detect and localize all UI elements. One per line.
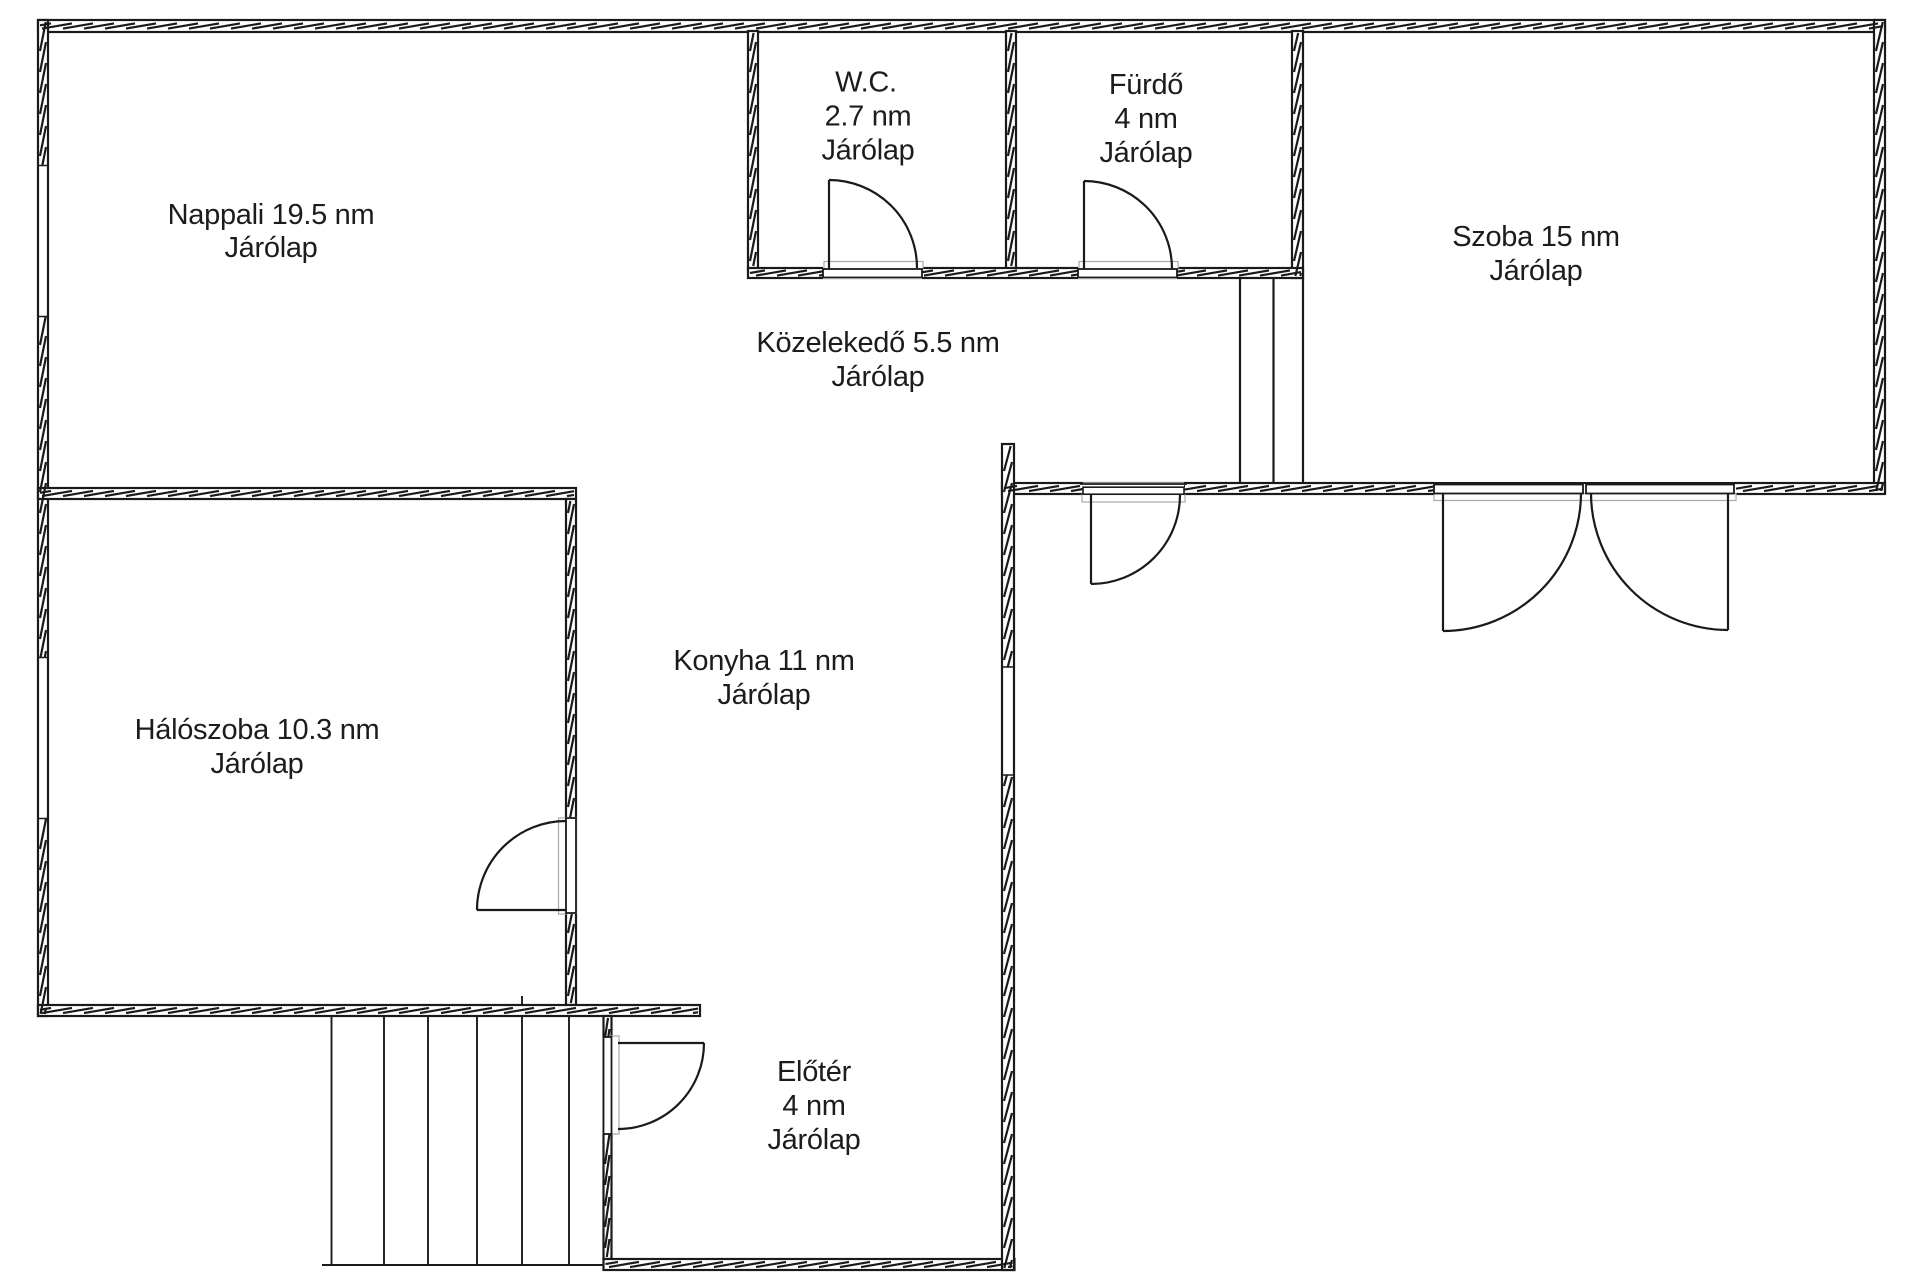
svg-text:Fürdő: Fürdő bbox=[1109, 69, 1183, 101]
svg-text:4 nm: 4 nm bbox=[782, 1090, 845, 1122]
svg-text:2.7 nm: 2.7 nm bbox=[825, 101, 912, 133]
svg-text:Előtér: Előtér bbox=[777, 1056, 852, 1088]
svg-text:Járólap: Járólap bbox=[717, 679, 810, 711]
svg-text:Közelekedő 5.5 nm: Közelekedő 5.5 nm bbox=[756, 327, 999, 359]
svg-text:Járólap: Járólap bbox=[767, 1124, 860, 1156]
svg-text:Járólap: Járólap bbox=[210, 748, 303, 780]
svg-text:Járólap: Járólap bbox=[831, 361, 924, 393]
svg-text:Járólap: Járólap bbox=[224, 232, 317, 264]
svg-text:Nappali 19.5 nm: Nappali 19.5 nm bbox=[168, 199, 375, 231]
svg-text:Járólap: Járólap bbox=[821, 135, 914, 167]
svg-text:W.C.: W.C. bbox=[835, 67, 897, 99]
svg-text:Szoba 15 nm: Szoba 15 nm bbox=[1452, 221, 1620, 253]
svg-text:Járólap: Járólap bbox=[1489, 255, 1582, 287]
svg-text:4 nm: 4 nm bbox=[1114, 103, 1177, 135]
svg-text:Konyha 11 nm: Konyha 11 nm bbox=[673, 645, 854, 677]
svg-text:Hálószoba 10.3 nm: Hálószoba 10.3 nm bbox=[135, 714, 380, 746]
svg-text:Járólap: Járólap bbox=[1099, 137, 1192, 169]
